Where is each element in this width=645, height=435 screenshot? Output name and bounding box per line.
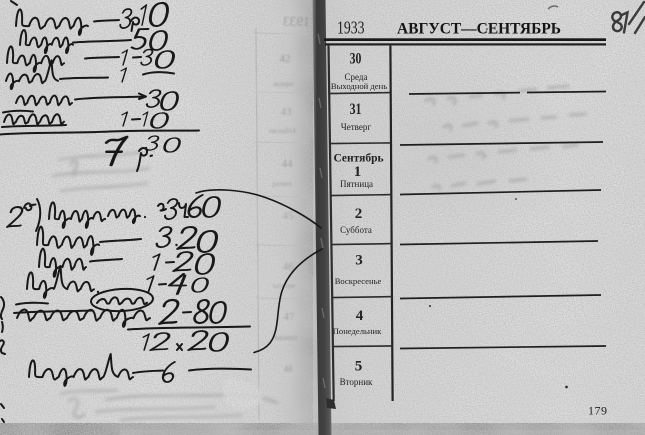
svg-text:1933: 1933 [337,18,365,38]
svg-text:31: 31 [350,101,362,118]
svg-text:4: 4 [356,308,364,324]
svg-text:179: 179 [588,404,608,418]
svg-text:Выходной день: Выходной день [331,81,387,91]
svg-text:Воскресенье: Воскресенье [335,276,382,286]
svg-text:АВГУСТ—СЕНТЯБРЬ: АВГУСТ—СЕНТЯБРЬ [397,21,561,38]
svg-text:Сентябрь: Сентябрь [333,153,383,165]
svg-text:Вторник: Вторник [340,377,373,387]
svg-text:3: 3 [355,252,363,268]
svg-text:Суббота: Суббота [340,225,372,235]
svg-text:Пятница: Пятница [340,179,373,189]
svg-text:30: 30 [350,50,362,67]
svg-text:5: 5 [355,358,363,374]
svg-text:Четверг: Четверг [341,122,371,132]
svg-text:2: 2 [355,206,363,222]
svg-text:1: 1 [354,164,362,180]
svg-text:Понедельник: Понедельник [333,326,382,336]
